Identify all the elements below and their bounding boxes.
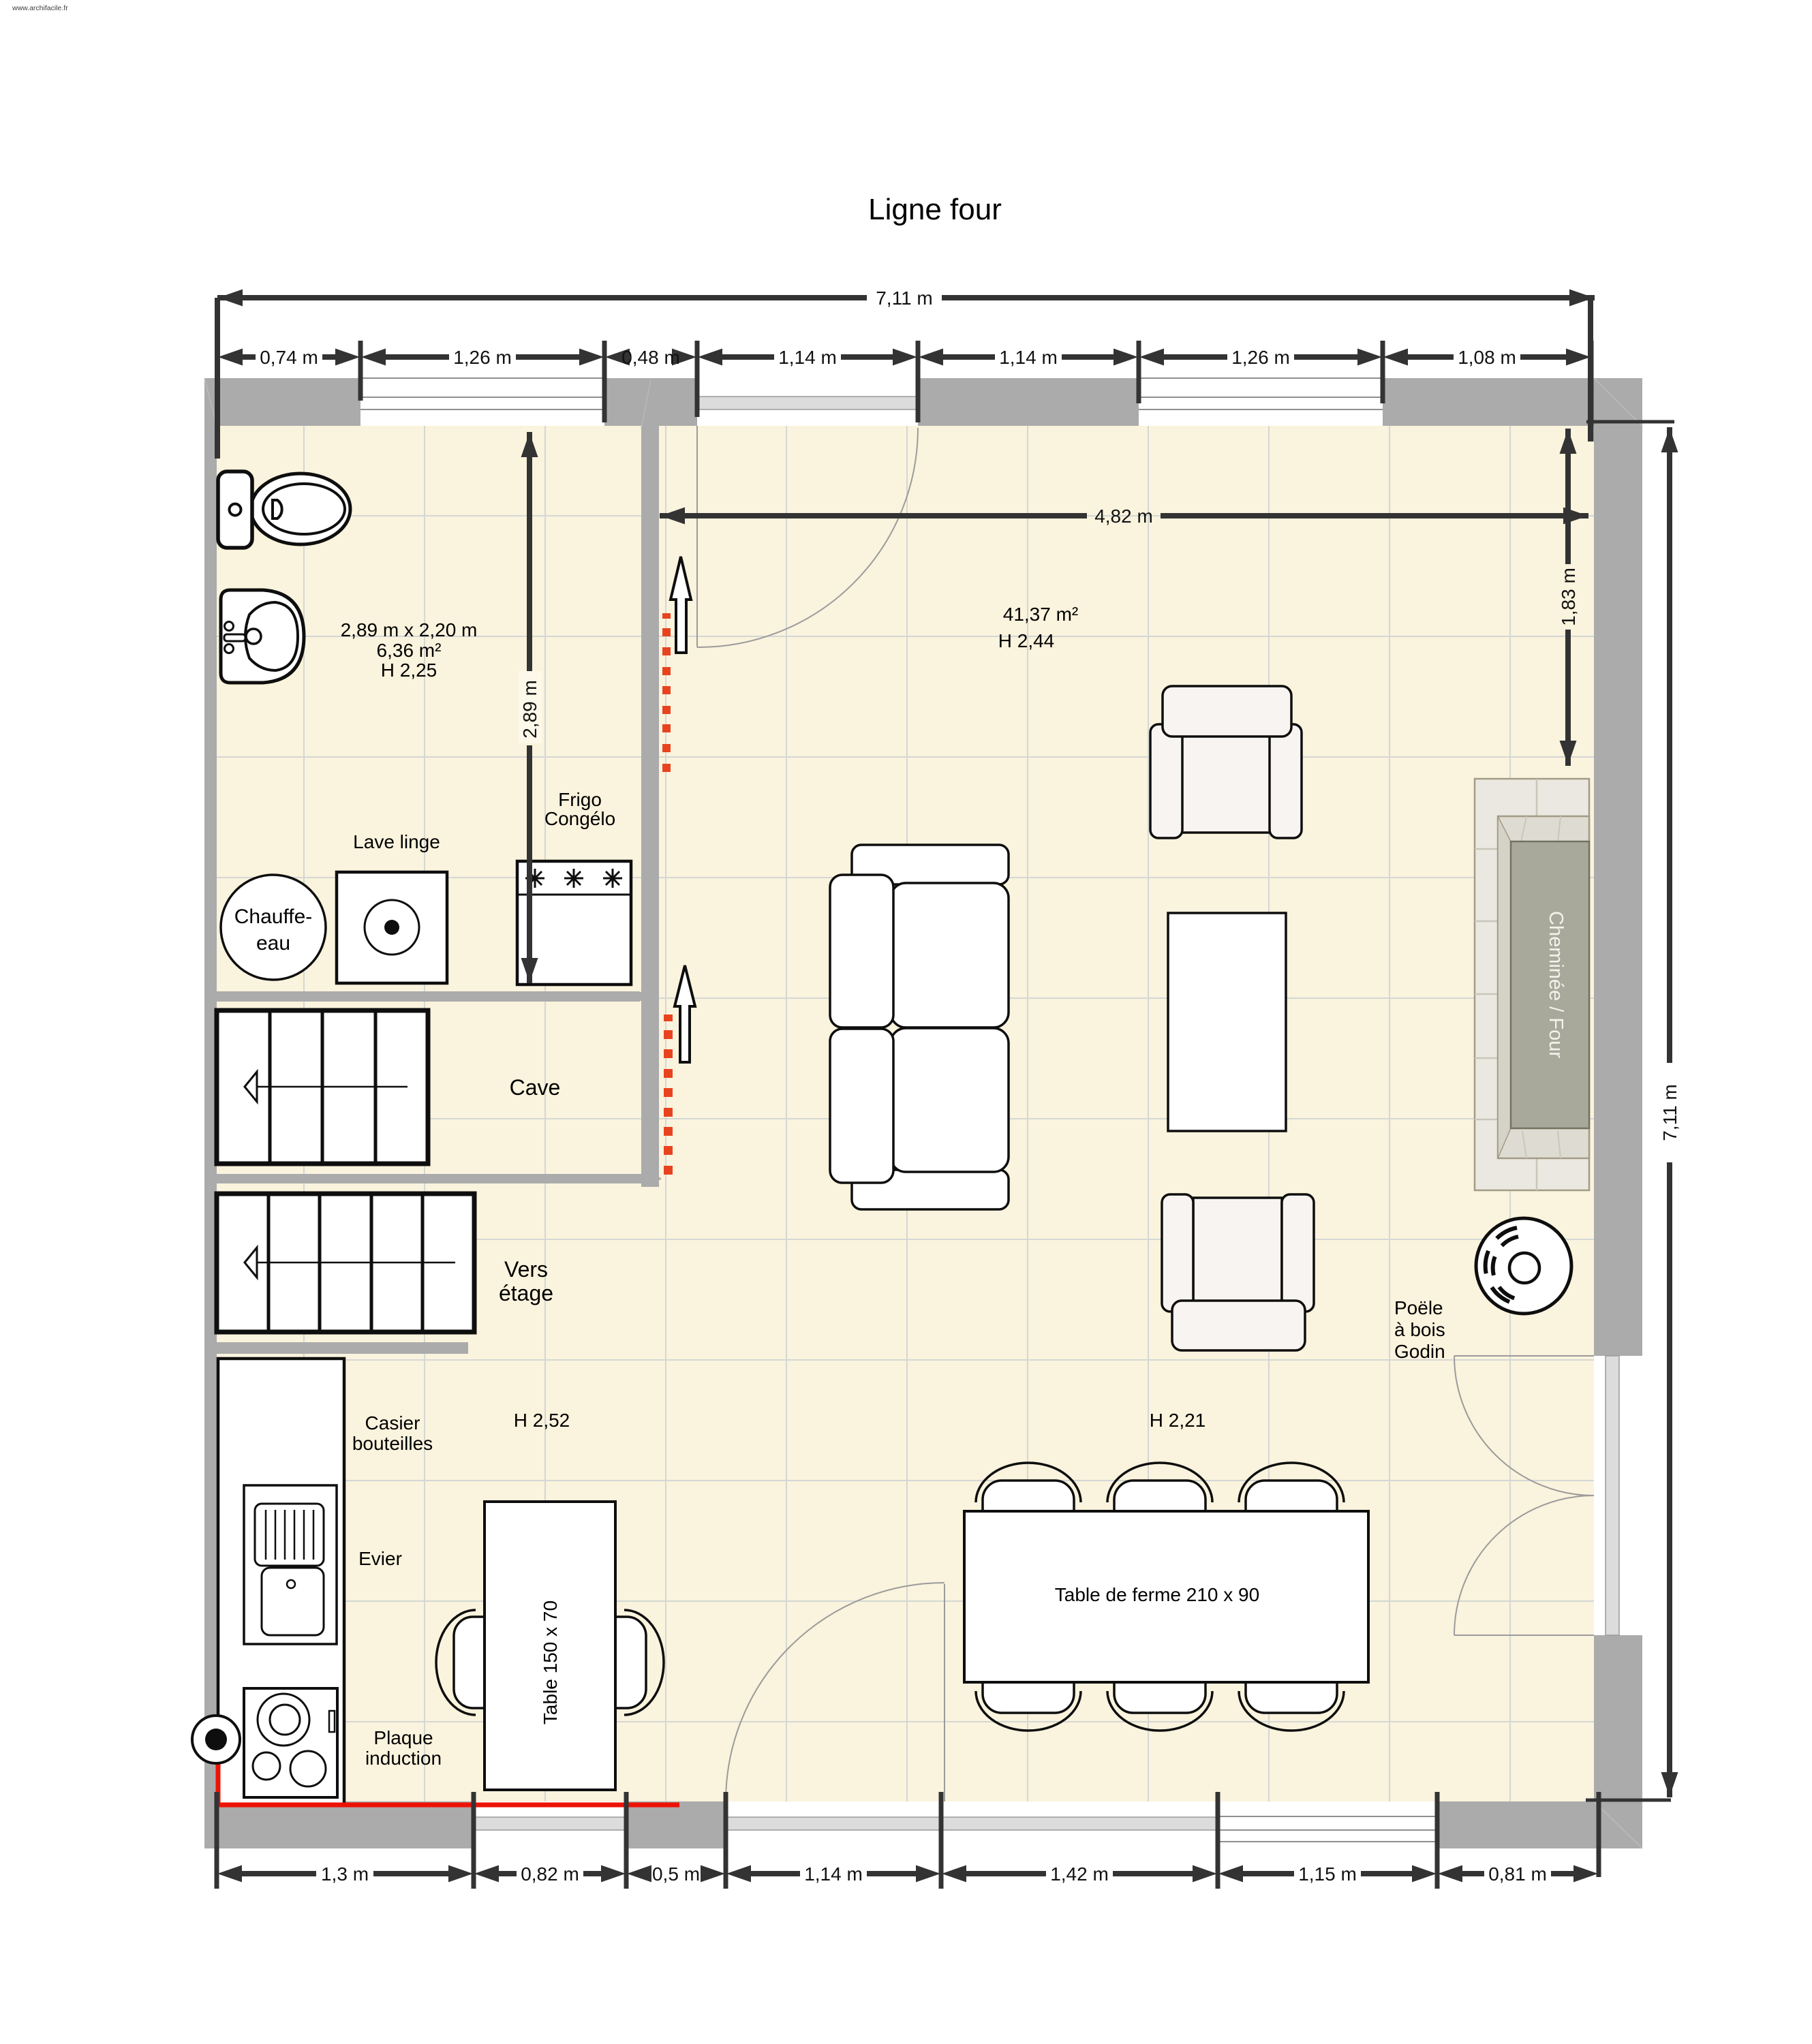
svg-text:1,42 m: 1,42 m: [1050, 1863, 1109, 1885]
svg-text:étage: étage: [499, 1281, 553, 1305]
svg-text:Table de ferme 210 x 90: Table de ferme 210 x 90: [1055, 1584, 1259, 1605]
svg-text:Lave linge: Lave linge: [353, 831, 440, 852]
svg-text:à bois: à bois: [1394, 1319, 1445, 1340]
svg-text:bouteilles: bouteilles: [352, 1433, 433, 1454]
svg-text:1,14 m: 1,14 m: [804, 1863, 863, 1885]
svg-text:Godin: Godin: [1394, 1341, 1445, 1362]
svg-text:0,5 m: 0,5 m: [652, 1863, 700, 1885]
svg-text:2,89 m x 2,20 m: 2,89 m x 2,20 m: [341, 619, 478, 640]
svg-text:1,14 m: 1,14 m: [999, 347, 1058, 368]
svg-text:0,74 m: 0,74 m: [260, 347, 318, 368]
svg-text:Vers: Vers: [504, 1257, 548, 1282]
svg-text:4,82 m: 4,82 m: [1094, 506, 1153, 527]
svg-text:Casier: Casier: [365, 1412, 420, 1434]
svg-text:7,11 m: 7,11 m: [876, 288, 933, 309]
svg-text:H 2,21: H 2,21: [1150, 1410, 1206, 1431]
svg-text:Chauffe-: Chauffe-: [234, 905, 313, 928]
svg-text:6,36 m²: 6,36 m²: [377, 640, 442, 661]
svg-text:Evier: Evier: [358, 1548, 402, 1569]
svg-text:induction: induction: [365, 1748, 442, 1769]
svg-text:H 2,25: H 2,25: [381, 660, 437, 681]
svg-text:Cheminée / Four: Cheminée / Four: [1545, 911, 1567, 1058]
svg-text:H 2,44: H 2,44: [998, 630, 1055, 651]
svg-text:1,26 m: 1,26 m: [453, 347, 512, 368]
svg-text:Frigo: Frigo: [558, 789, 602, 810]
svg-text:eau: eau: [256, 932, 290, 955]
svg-text:0,48 m: 0,48 m: [621, 347, 680, 368]
svg-text:0,82 m: 0,82 m: [521, 1863, 579, 1885]
svg-text:7,11 m: 7,11 m: [1659, 1084, 1680, 1141]
svg-text:Congélo: Congélo: [544, 808, 615, 829]
svg-text:1,14 m: 1,14 m: [778, 347, 837, 368]
svg-text:1,83 m: 1,83 m: [1558, 568, 1579, 626]
svg-text:1,26 m: 1,26 m: [1231, 347, 1290, 368]
svg-text:Ligne four: Ligne four: [868, 193, 1002, 226]
svg-text:41,37 m²: 41,37 m²: [1003, 604, 1079, 625]
svg-text:www.archifacile.fr: www.archifacile.fr: [12, 4, 68, 12]
svg-text:Plaque: Plaque: [373, 1727, 433, 1748]
svg-text:2,89 m: 2,89 m: [519, 680, 540, 739]
svg-text:1,3 m: 1,3 m: [321, 1863, 369, 1885]
svg-text:Table 150 x 70: Table 150 x 70: [540, 1600, 561, 1724]
svg-text:1,15 m: 1,15 m: [1298, 1863, 1357, 1885]
svg-text:0,81 m: 0,81 m: [1488, 1863, 1547, 1885]
svg-text:Poële: Poële: [1394, 1297, 1443, 1318]
svg-text:Cave: Cave: [510, 1075, 561, 1100]
svg-text:H 2,52: H 2,52: [514, 1410, 570, 1431]
svg-text:1,08 m: 1,08 m: [1458, 347, 1516, 368]
